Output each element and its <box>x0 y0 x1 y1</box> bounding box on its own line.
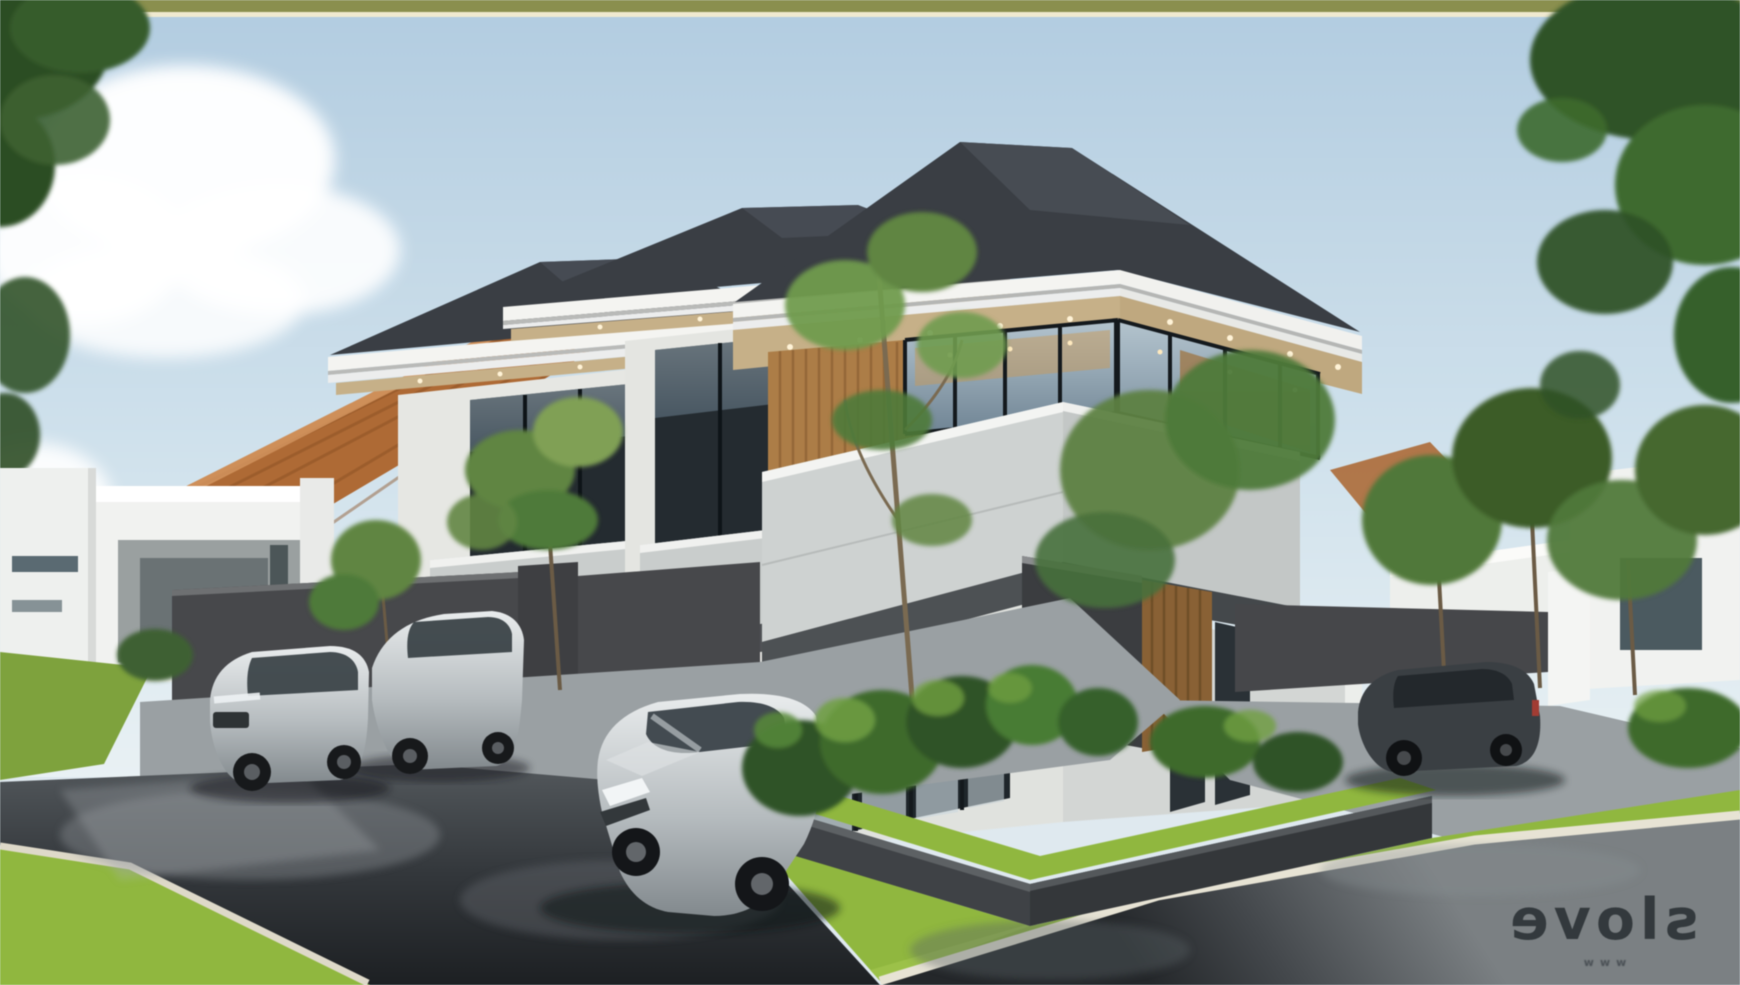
far-left-house <box>0 468 96 673</box>
scene-svg <box>0 0 1740 985</box>
top-cream-strip <box>0 12 1740 17</box>
hedge-left <box>117 629 193 681</box>
architectural-render: slove www <box>0 0 1740 985</box>
top-olive-strip <box>0 0 1740 12</box>
car-suv-right <box>1345 662 1565 796</box>
